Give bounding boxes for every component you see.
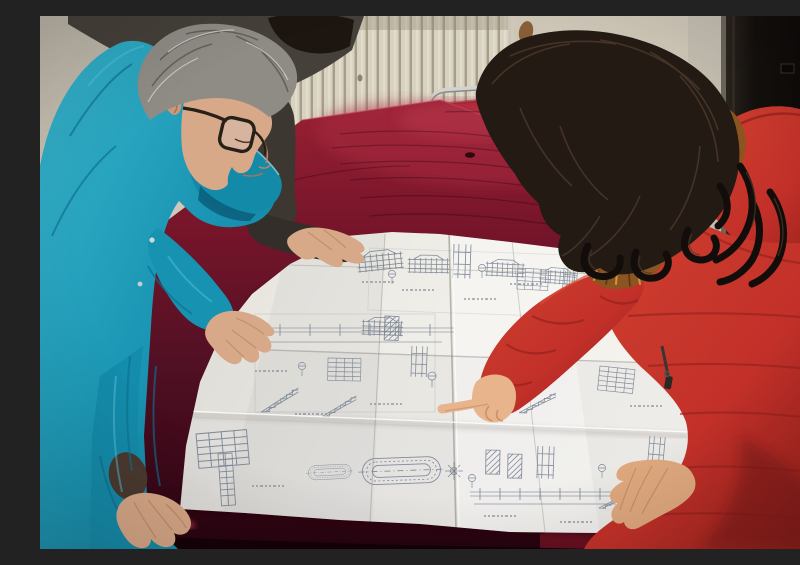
photo-canvas xyxy=(40,16,800,549)
vignette xyxy=(40,16,800,549)
photo: Indoor photograph: a man in a teal work … xyxy=(40,16,800,549)
